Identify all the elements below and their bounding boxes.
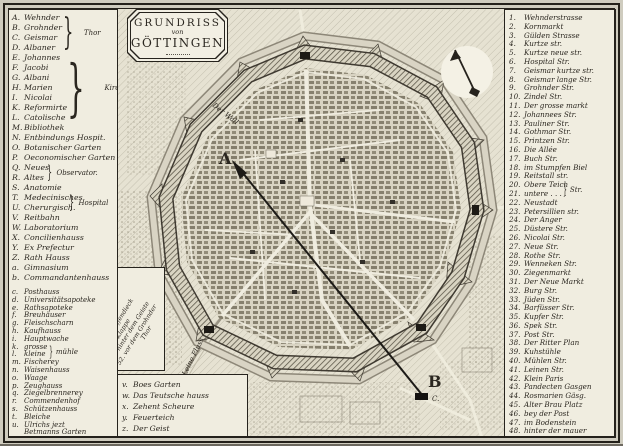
legend-item: S. Anatomie <box>12 183 117 193</box>
legend-item-label: Altes <box>24 173 44 183</box>
legend-item-label: Feuerteich <box>133 412 174 423</box>
legend-item-label: Gimnasium <box>24 263 69 273</box>
legend-item-label: Cherurgisch. <box>24 203 75 213</box>
legend-item-key: U. <box>12 203 24 213</box>
legend-item-key: E. <box>12 53 24 63</box>
legend-item: 48. hinter der mauer <box>509 427 615 436</box>
legend-item-key: y. <box>122 412 133 423</box>
building-b <box>415 393 428 400</box>
legend-item-label: Nicolai <box>24 93 52 103</box>
legend-item-label: Neues <box>24 163 49 173</box>
legend-item-key: D. <box>12 43 24 53</box>
brace-label-kirche: Kirche <box>104 84 118 92</box>
marker-c: C. <box>432 395 439 403</box>
legend-item: W. Laboratorium <box>12 223 117 233</box>
legend-item-key: I. <box>12 93 24 103</box>
legend-item-label: Grohnder <box>24 23 62 33</box>
legend-item-key: b. <box>12 273 24 283</box>
rotated-legend-text: 49. am Pfaffendieck 50. im Klappe 51. hi… <box>117 267 165 371</box>
legend-item-label: Rath Hauss <box>24 253 70 263</box>
legend-item-label: Anatomie <box>24 183 62 193</box>
brace-glyph: } <box>69 193 74 213</box>
legend-item-label: Botanischer Garten <box>24 143 101 153</box>
legend-item: Betmanns Garten <box>12 429 117 437</box>
legend-item-label: Der Geist <box>133 423 170 434</box>
legend-item: Z. Rath Hauss <box>12 253 117 263</box>
legend-item-key: V. <box>12 213 24 223</box>
legend-item-key: P. <box>12 153 24 163</box>
legend-item-label: hinter der mauer <box>524 427 586 436</box>
legend-item-label: Albani <box>24 73 49 83</box>
legend-item-label: Reitbahn <box>24 213 60 223</box>
legend-item-label: Boes Garten <box>133 379 181 390</box>
legend-item-key: H. <box>12 83 24 93</box>
left-legend-lower: c. Posthauss d. Universitätsapoteke e. R… <box>12 289 117 437</box>
legend-item-label: Das Teutsche hauss <box>133 390 209 401</box>
legend-item-key: Y. <box>12 243 24 253</box>
legend-item: a. Gimnasium <box>12 263 117 273</box>
brace-label-observator: Observator. <box>56 169 97 177</box>
brace-observator: } Observator. <box>47 163 98 183</box>
legend-item: P. Oeconomischer Garten <box>12 153 117 163</box>
legend-item: w. Das Teutsche hauss <box>122 390 247 401</box>
legend-item-key: G. <box>12 73 24 83</box>
left-legend-panel: A. Wehnder B. Grohnder C. Geismar D. Alb… <box>8 9 118 438</box>
legend-item-key: W. <box>12 223 24 233</box>
legend-item: M. Bibliothek <box>12 123 117 133</box>
legend-item-key: F. <box>12 63 24 73</box>
legend-item-label: Albaner <box>24 43 55 53</box>
legend-item-key: N. <box>12 133 24 143</box>
brace-label-str: Str. <box>570 186 582 194</box>
legend-item-label: Marien <box>24 83 53 93</box>
brace-glyph: } <box>63 13 73 53</box>
brace-glyph: } <box>49 344 53 360</box>
legend-item-key: Z. <box>12 253 24 263</box>
scale-mark <box>166 52 190 55</box>
legend-item-key: A. <box>12 13 24 23</box>
legend-item-number: 48. <box>509 427 524 436</box>
legend-item-label: Johannes <box>24 53 60 63</box>
legend-item-key: C. <box>12 33 24 43</box>
marker-a: A <box>218 149 232 168</box>
marker-b: B <box>428 372 442 391</box>
legend-item-key: M. <box>12 123 24 133</box>
bottom-legend-panel: v. Boes Garten w. Das Teutsche hauss x. … <box>117 374 248 438</box>
legend-item-label: Concilienhauss <box>24 233 84 243</box>
brace-kirche: } Kirche <box>67 53 118 123</box>
legend-item-key: T. <box>12 193 24 203</box>
legend-item-label: Bibliothek <box>24 123 64 133</box>
brace-label-thor: Thor <box>84 29 101 37</box>
legend-item-label: Catolische <box>24 113 65 123</box>
legend-item-label: Betmanns Garten <box>24 429 86 437</box>
legend-item: y. Feuerteich <box>122 412 247 423</box>
right-legend-panel: 1. Wehnderstrasse 2. Kornmarkt 3. Gülden… <box>504 9 616 438</box>
brace-str: } Str. <box>563 182 582 198</box>
map-title-line1: GRUNDRISS <box>134 17 221 29</box>
legend-item-label: Reformirte <box>24 103 67 113</box>
brace-thor: } Thor <box>63 13 101 53</box>
title-cartouche: GRUNDRISS von GÖTTINGEN <box>127 9 228 62</box>
legend-item: X. Concilienhauss <box>12 233 117 243</box>
legend-item-key: a. <box>12 263 24 273</box>
legend-item-key: v. <box>122 379 133 390</box>
brace-muhle: } mühle <box>49 344 78 360</box>
legend-item-key: z. <box>122 423 133 434</box>
legend-item-key: S. <box>12 183 24 193</box>
legend-item-key: K. <box>12 103 24 113</box>
legend-item-key: X. <box>12 233 24 243</box>
legend-item: O. Botanischer Garten <box>12 143 117 153</box>
legend-item-key: Q. <box>12 163 24 173</box>
legend-item: Y. Ex Prefectur <box>12 243 117 253</box>
legend-item: b. Commandantenhauss <box>12 273 117 283</box>
legend-item-label: Zehent Scheure <box>133 401 194 412</box>
brace-glyph: } <box>563 182 567 198</box>
map-sheet: A B C. Der Wall Leine Fluss A. Wehnder B… <box>0 0 623 446</box>
map-title-line3: GÖTTINGEN <box>131 36 224 50</box>
legend-item-label: Geismar <box>24 33 57 43</box>
brace-glyph: } <box>47 163 52 183</box>
legend-item-key: x. <box>122 401 133 412</box>
brace-label-muhle: mühle <box>56 348 78 356</box>
legend-item: x. Zehent Scheure <box>122 401 247 412</box>
legend-item-key: B. <box>12 23 24 33</box>
legend-item-label: Oeconomischer Garten <box>24 153 115 163</box>
legend-item-key: w. <box>122 390 133 401</box>
legend-item-label: Commandantenhauss <box>24 273 109 283</box>
legend-item: V. Reitbahn <box>12 213 117 223</box>
legend-item-key: O. <box>12 143 24 153</box>
brace-hospital: } Hospital <box>69 193 108 213</box>
legend-item-label: Jacobi <box>24 63 48 73</box>
legend-item-key: u. <box>12 422 24 430</box>
legend-item: v. Boes Garten <box>122 379 247 390</box>
legend-item: z. Der Geist <box>122 423 247 434</box>
legend-item-label: Laboratorium <box>24 223 78 233</box>
legend-item-label: Wehnder <box>24 13 59 23</box>
compass-icon <box>441 46 493 98</box>
legend-item-label: Entbindungs Hospit. <box>24 133 105 143</box>
legend-item-label: Ex Prefectur <box>24 243 74 253</box>
brace-label-hospital: Hospital <box>78 199 108 207</box>
legend-item-key: L. <box>12 113 24 123</box>
right-legend-list: 1. Wehnderstrasse 2. Kornmarkt 3. Gülden… <box>509 14 615 436</box>
legend-item-key <box>12 429 24 437</box>
legend-item: N. Entbindungs Hospit. <box>12 133 117 143</box>
legend-item-key: R. <box>12 173 24 183</box>
rotated-legend-panel: 49. am Pfaffendieck 50. im Klappe 51. hi… <box>117 267 165 371</box>
map-title-line2: von <box>172 29 184 36</box>
brace-glyph: } <box>67 53 85 123</box>
cartouche-inner: GRUNDRISS von GÖTTINGEN <box>131 13 224 58</box>
